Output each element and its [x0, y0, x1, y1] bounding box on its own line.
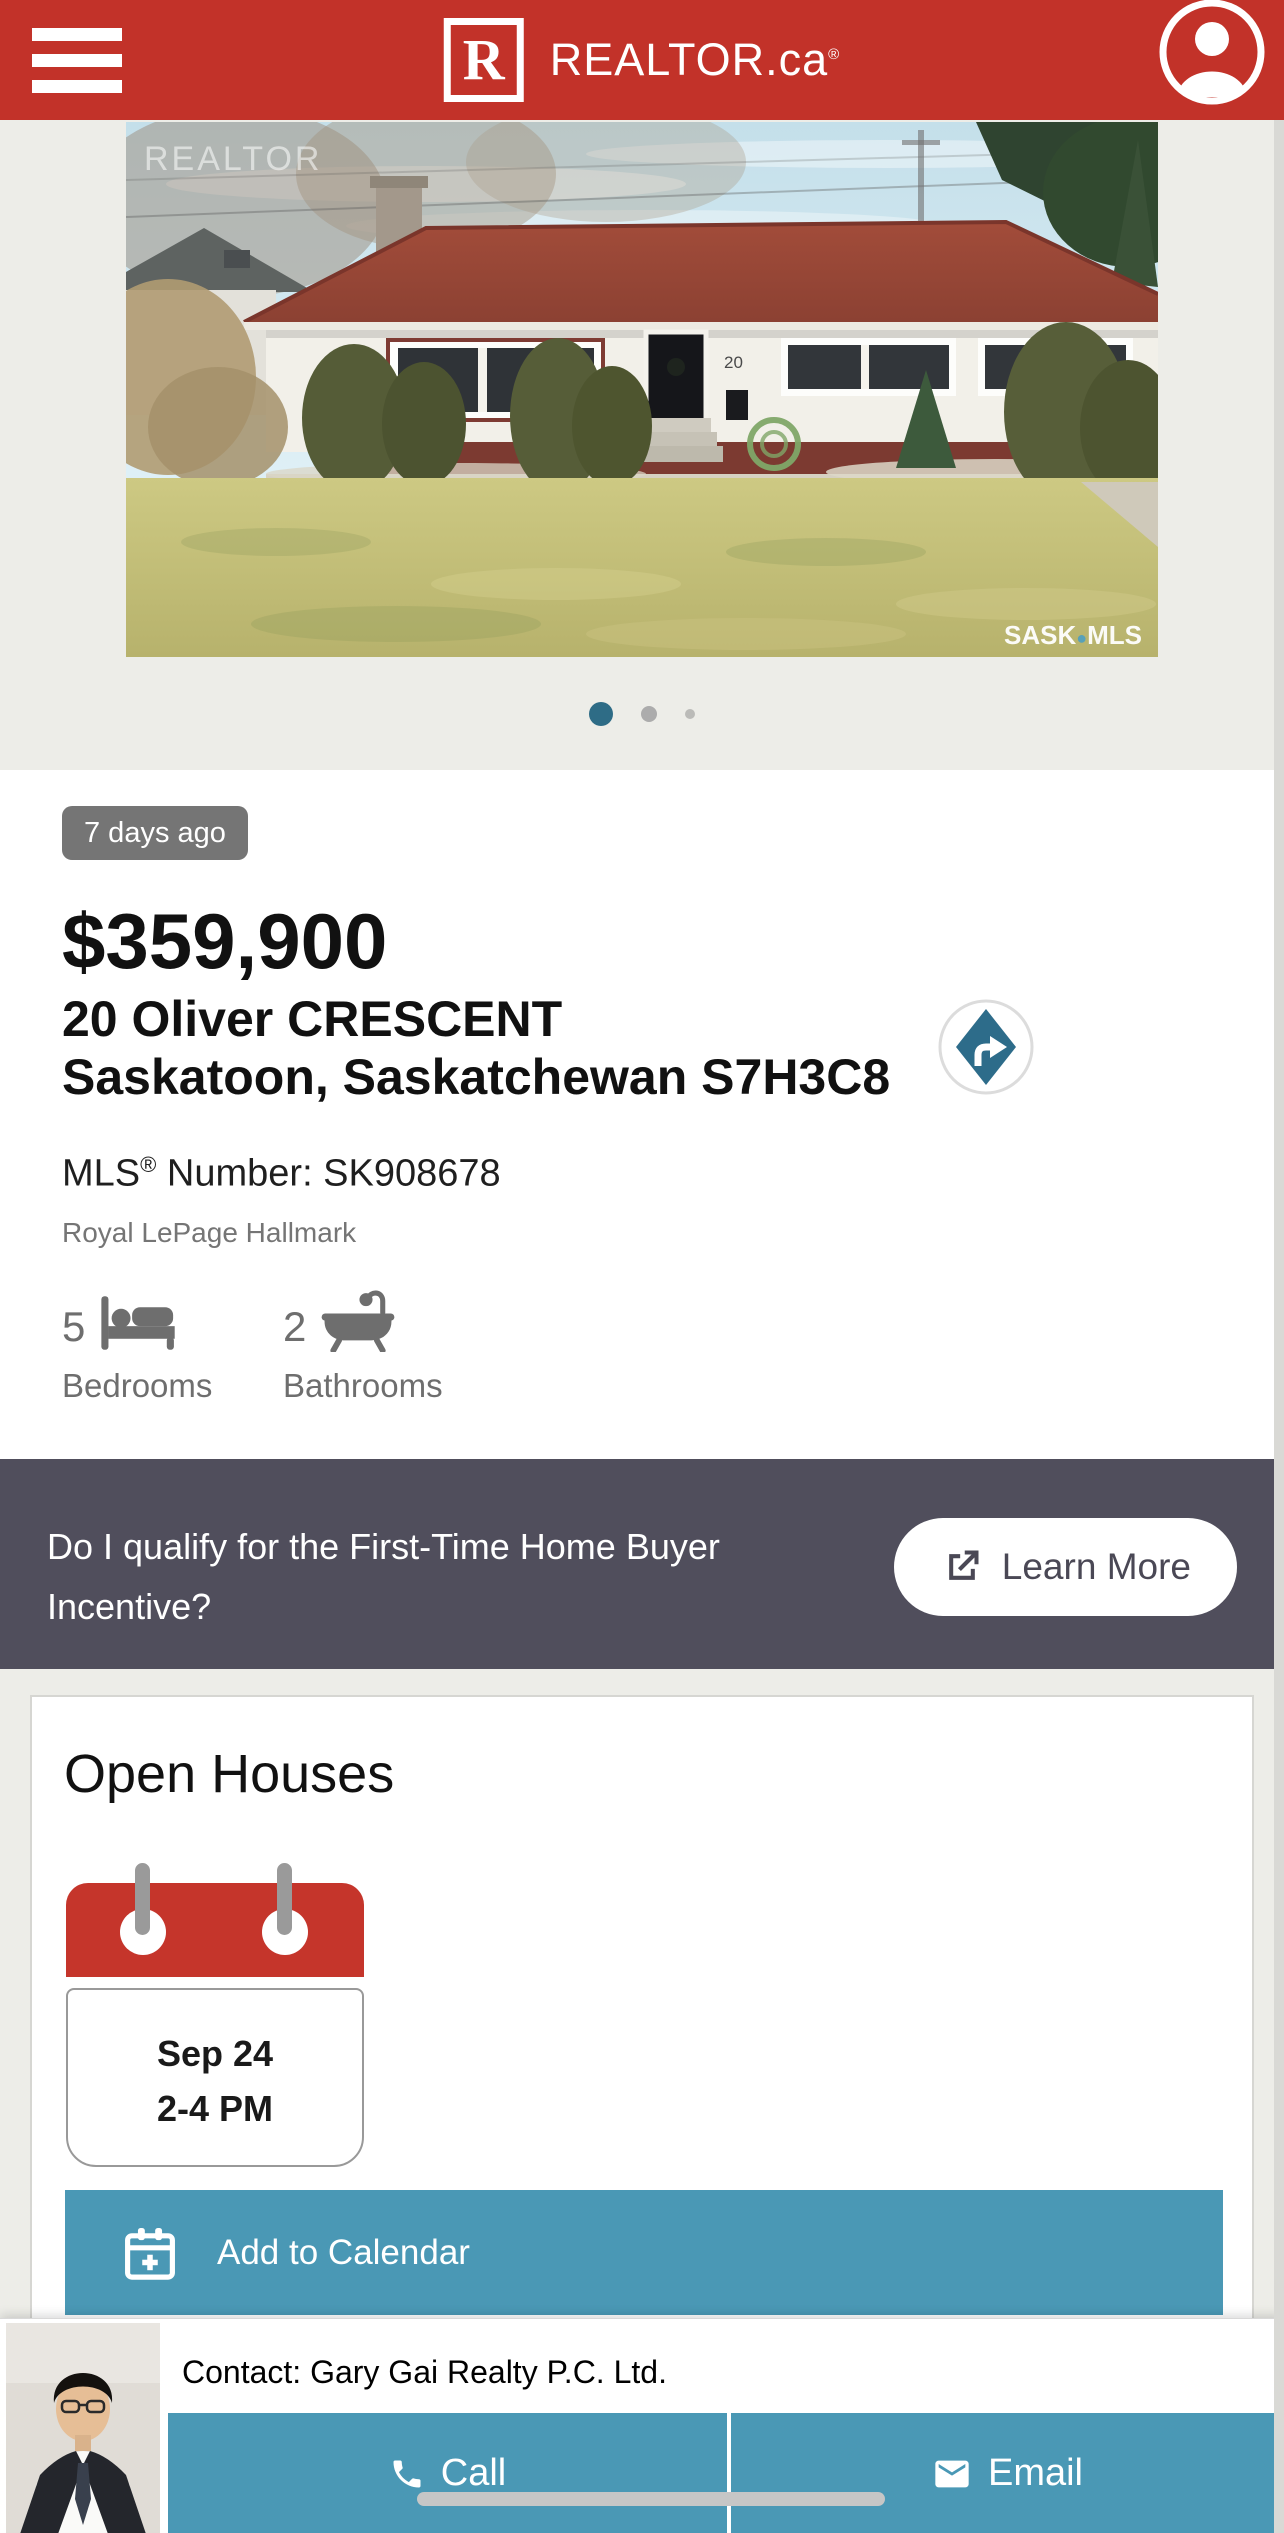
call-button[interactable]: Call [168, 2413, 727, 2533]
calendar-plus-icon [119, 2222, 181, 2284]
learn-more-button[interactable]: Learn More [894, 1518, 1237, 1616]
bedrooms-label: Bedrooms [62, 1366, 212, 1406]
listing-photo-scene: 20 [126, 122, 1158, 657]
directions-button[interactable] [938, 999, 1034, 1095]
carousel-dots [0, 702, 1284, 726]
open-house-time: 2-4 PM [68, 2081, 362, 2136]
house-number: 20 [724, 353, 743, 372]
bedrooms-feature: 5 Bedrooms [62, 1288, 212, 1406]
address-line-2: Saskatoon, Saskatchewan S7H3C8 [62, 1048, 890, 1106]
bathrooms-feature: 2 Bathrooms [283, 1288, 443, 1406]
email-button[interactable]: Email [731, 2413, 1284, 2533]
home-indicator[interactable] [417, 2492, 885, 2506]
profile-avatar-icon[interactable] [1157, 0, 1267, 112]
bedrooms-count: 5 [62, 1306, 85, 1348]
listing-photo[interactable]: 20 [126, 122, 1158, 657]
calendar-icon [66, 1883, 364, 1977]
photo-watermark-realtor: REALTOR [144, 140, 322, 178]
realtor-logo[interactable]: R REALTOR.ca® [444, 0, 840, 120]
envelope-icon [932, 2454, 972, 2494]
listing-address: 20 Oliver CRESCENT Saskatoon, Saskatchew… [62, 990, 890, 1106]
carousel-dot-active[interactable] [589, 702, 613, 726]
open-house-date: Sep 24 [68, 2026, 362, 2081]
address-line-1: 20 Oliver CRESCENT [62, 990, 890, 1048]
agent-photo[interactable] [6, 2323, 160, 2533]
external-link-icon [940, 1545, 984, 1589]
carousel-dot[interactable] [641, 706, 657, 722]
bathrooms-label: Bathrooms [283, 1366, 443, 1406]
brokerage-name: Royal LePage Hallmark [62, 1216, 356, 1250]
bathtub-icon [320, 1288, 396, 1352]
realtor-listing-screen: R REALTOR.ca® [0, 0, 1284, 2533]
scrollbar-gutter [1274, 120, 1284, 2533]
phone-icon [389, 2456, 425, 2492]
incentive-question: Do I qualify for the First-Time Home Buy… [47, 1517, 747, 1637]
open-house-date-widget: Sep 24 2-4 PM [66, 1883, 364, 2167]
carousel-dot[interactable] [685, 709, 695, 719]
open-houses-title: Open Houses [64, 1741, 394, 1807]
bed-icon [99, 1294, 181, 1352]
bathrooms-count: 2 [283, 1306, 306, 1348]
app-header: R REALTOR.ca® [0, 0, 1284, 120]
listing-price: $359,900 [62, 902, 387, 980]
hamburger-menu-icon[interactable] [32, 28, 122, 93]
photo-watermark-saskmls: SASK●MLS [1004, 620, 1142, 650]
contact-brokerage-label: Contact: Gary Gai Realty P.C. Ltd. [182, 2353, 667, 2391]
mls-number: MLS® Number: SK908678 [62, 1142, 501, 1197]
brand-wordmark: REALTOR.ca® [550, 34, 840, 86]
realtor-r-logo-icon: R [444, 18, 524, 102]
posted-date-badge: 7 days ago [62, 806, 248, 860]
incentive-banner: Do I qualify for the First-Time Home Buy… [0, 1459, 1284, 1669]
add-to-calendar-button[interactable]: Add to Calendar [65, 2190, 1223, 2315]
